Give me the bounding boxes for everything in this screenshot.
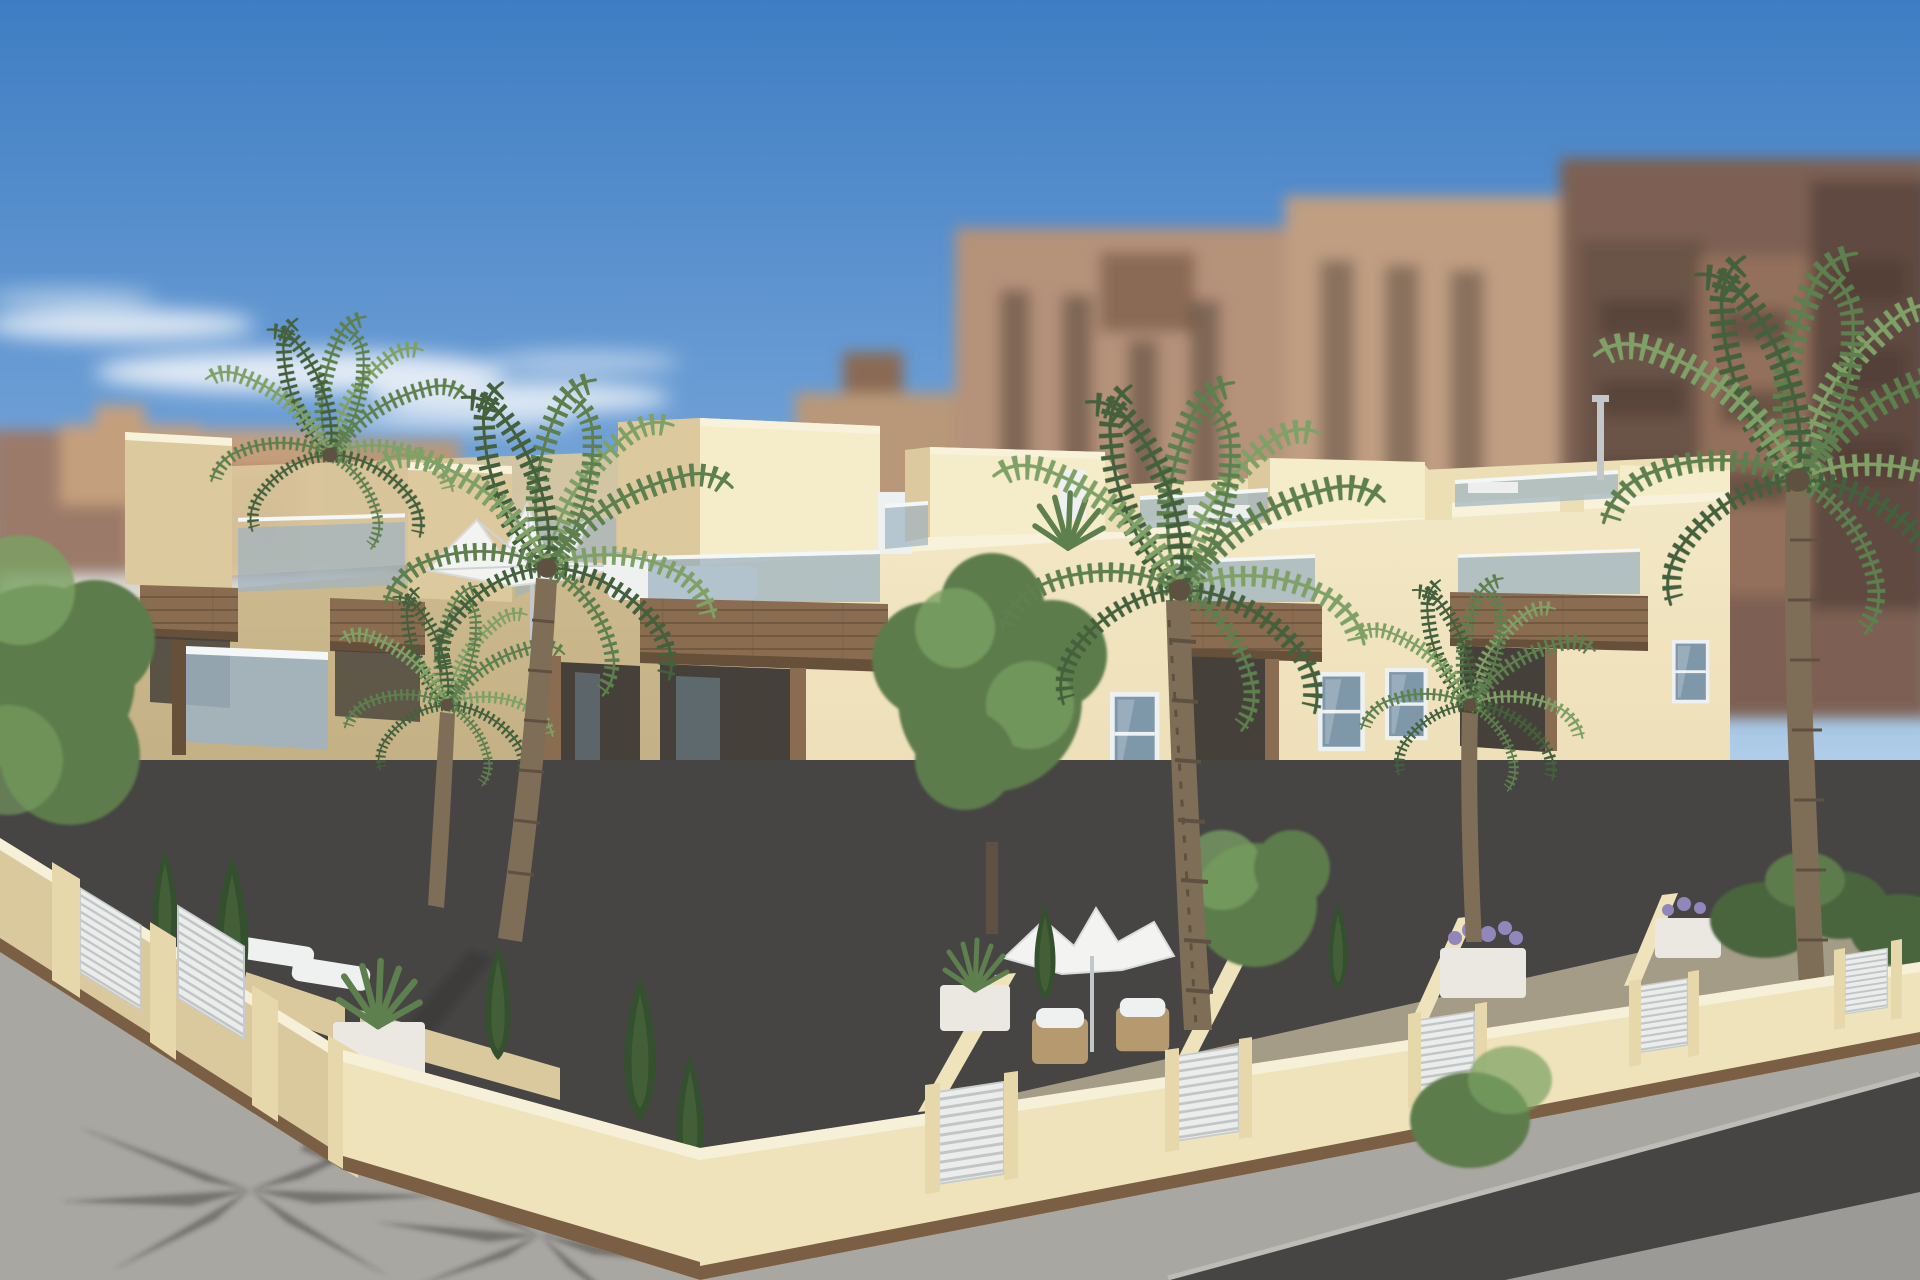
wicker-chair xyxy=(1116,998,1169,1051)
left-glass-balcony xyxy=(172,640,328,755)
louver-panel xyxy=(1640,979,1688,1053)
corner-tower-sun-face xyxy=(700,418,880,560)
roof-flue xyxy=(1597,400,1604,480)
louver-panel xyxy=(1845,949,1887,1014)
louver-panel xyxy=(938,1082,1004,1184)
window xyxy=(1318,672,1365,751)
wicker-chair xyxy=(1032,1008,1088,1064)
balcony-glass xyxy=(648,554,880,602)
balcony-wood-box xyxy=(640,598,888,672)
window xyxy=(1672,640,1709,703)
render-image xyxy=(0,0,1920,1280)
louver-panel xyxy=(1178,1047,1239,1141)
roof-tower xyxy=(125,432,232,590)
